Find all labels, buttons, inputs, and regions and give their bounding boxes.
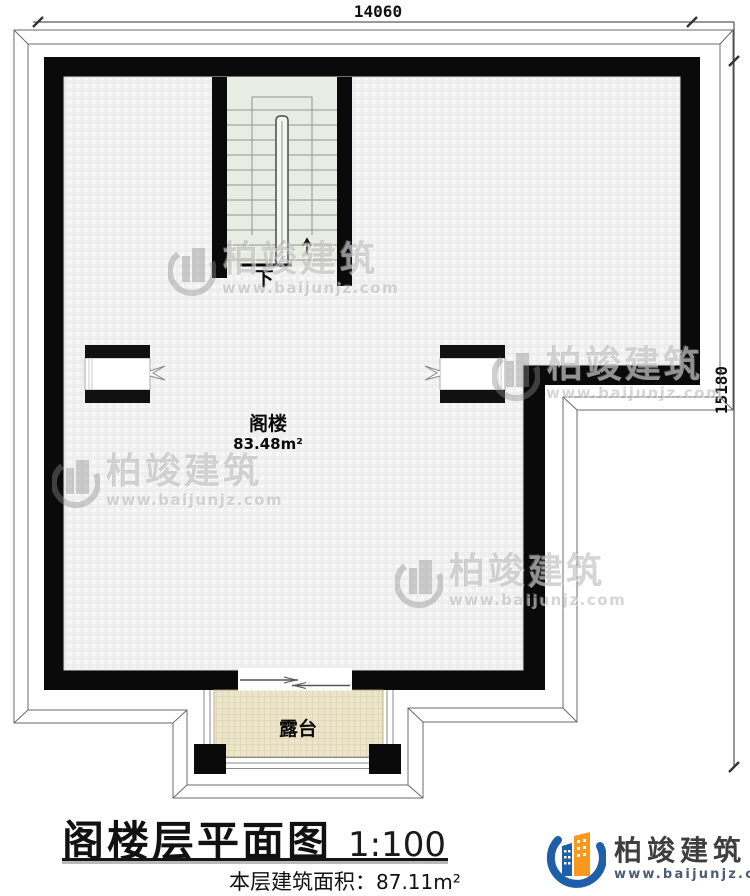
terrace-label: 露台 <box>279 717 317 740</box>
title-underline <box>62 858 448 861</box>
floorplan-drawing: 下 <box>0 0 750 806</box>
stairwell-wall-right <box>337 77 352 286</box>
brand-name: 柏竣建筑 <box>614 835 750 867</box>
brand-logo-icon <box>544 826 606 890</box>
floor-area-value: 87.11m² <box>376 870 461 894</box>
terrace-column-left <box>194 744 226 774</box>
room-name: 阁楼 <box>249 412 287 435</box>
room-area: 83.48m² <box>233 435 303 453</box>
dimension-top-value: 14060 <box>354 2 402 21</box>
floor-area-label: 本层建筑面积： <box>229 870 376 894</box>
stairwell-wall-left <box>212 77 227 278</box>
dimension-right-value: 15180 <box>712 366 731 414</box>
floor-area-line: 本层建筑面积：87.11m² <box>229 866 461 896</box>
floorplan-page: 下 <box>0 0 750 896</box>
brand-url: www.baijunjz.com <box>614 867 750 882</box>
staircase: 下 <box>212 77 352 290</box>
terrace-column-right <box>369 744 401 774</box>
brand-logo: 柏竣建筑 www.baijunjz.com <box>544 826 750 890</box>
stair-direction-label: 下 <box>254 268 273 290</box>
